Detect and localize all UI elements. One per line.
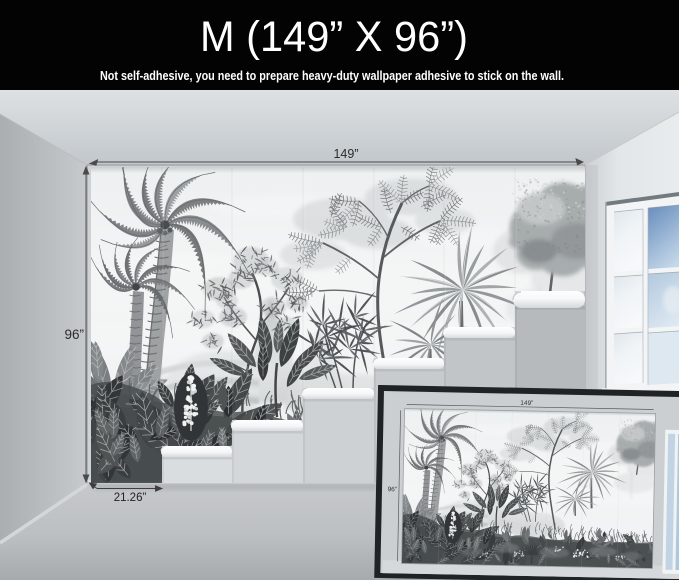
svg-text:149”: 149”	[520, 400, 533, 407]
svg-text:Not self-adhesive, you need to: Not self-adhesive, you need to prepare h…	[100, 68, 564, 83]
svg-text:96”: 96”	[64, 327, 84, 342]
svg-text:21.26”: 21.26”	[114, 492, 147, 504]
svg-text:149”: 149”	[333, 147, 358, 161]
svg-text:M (149” X 96”): M (149” X 96”)	[200, 13, 468, 61]
svg-text:96”: 96”	[388, 486, 398, 493]
